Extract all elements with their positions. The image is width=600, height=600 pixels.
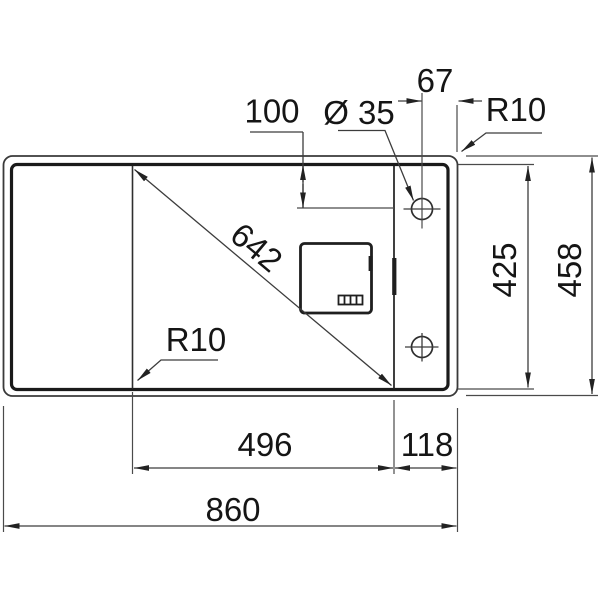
sink-outer-rim [4, 156, 458, 396]
sink-inner-edge [12, 165, 449, 390]
dim-overall-depth-458: 458 [551, 158, 592, 395]
dim-corner-radius-top-label: R10 [486, 91, 547, 128]
dim-bowl-depth-425: 425 [486, 166, 528, 388]
ledge-clip-mark [392, 258, 396, 295]
dim-bowl-width-label: 496 [237, 426, 292, 463]
dim-tap-offset-label: 67 [417, 62, 454, 99]
dim-bowl-diagonal-label: 642 [224, 215, 290, 279]
dim-tap-offset-67: 67 [398, 62, 482, 101]
drain-grate [339, 296, 363, 305]
dim-tap-hole-dia-label: Ø 35 [323, 94, 395, 131]
dim-tap-setback-label: 100 [244, 93, 299, 130]
dim-tap-setback-100: 100 [244, 93, 303, 209]
dim-corner-radius-top: R10 [462, 91, 547, 152]
dim-corner-radius-bottom-label: R10 [166, 321, 227, 358]
tap-hole-lower [405, 333, 439, 362]
dim-corner-radius-bottom: R10 [138, 321, 227, 381]
sink-outline [4, 156, 458, 396]
dim-overall-depth-label: 458 [551, 242, 588, 297]
drain-box [301, 244, 372, 314]
dim-tap-hole-dia-35: Ø 35 [323, 94, 413, 201]
dim-overall-width-860: 860 [5, 491, 457, 528]
dim-ledge-width-118: 118 [395, 426, 457, 468]
dim-overall-width-label: 860 [205, 491, 260, 528]
sink-dimension-drawing: 67 100 Ø 35 R10 642 425 458 R10 4 [0, 0, 600, 600]
dim-bowl-depth-label: 425 [486, 242, 523, 297]
dim-ledge-width-label: 118 [401, 426, 454, 463]
drawing-svg: 67 100 Ø 35 R10 642 425 458 R10 4 [0, 0, 600, 600]
dim-bowl-width-496: 496 [134, 426, 393, 468]
